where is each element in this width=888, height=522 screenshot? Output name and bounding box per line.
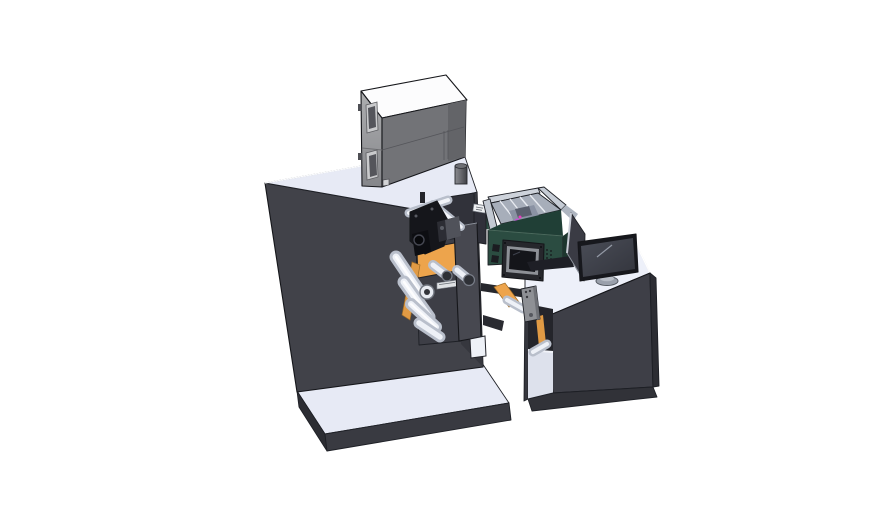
desk-bay-back-wall: [528, 350, 553, 399]
roller-3-end-cap: [442, 271, 452, 281]
print-head-roller-eye: [414, 235, 424, 245]
parts-feeder-tray: [483, 187, 578, 281]
exhaust-stack-cap: [455, 164, 467, 169]
top-box-corner-plate: [383, 179, 389, 186]
top-box-hinge-upper: [358, 104, 362, 111]
print-head-mount: [445, 216, 461, 240]
guide-bracket-hole: [529, 313, 533, 317]
bridge-roller: [507, 300, 523, 309]
bridge-arm-lower: [483, 315, 504, 331]
exhaust-stack: [455, 164, 467, 184]
cad-viewport: [0, 0, 888, 522]
top-box-window-lower: [366, 150, 378, 180]
roller-end-cap-front: [420, 285, 434, 299]
top-box-window-upper: [366, 102, 378, 133]
print-head-pin: [420, 192, 425, 203]
feeder-control-display: [502, 240, 544, 281]
web-exit-slot: [470, 336, 486, 358]
top-box-hinge-lower: [358, 153, 362, 160]
cad-render-canvas: [0, 0, 888, 522]
